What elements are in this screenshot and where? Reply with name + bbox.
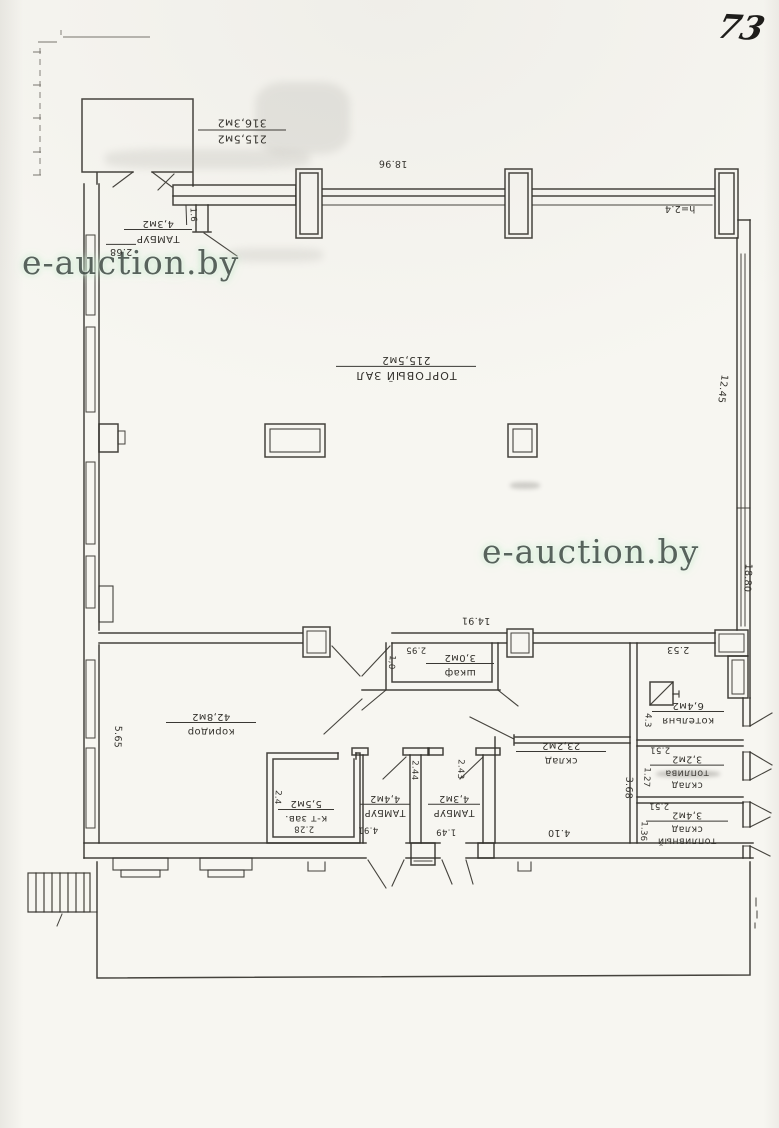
room-name: ТАМБУР bbox=[124, 230, 192, 245]
dim-tambour-right-width: 1.49 bbox=[433, 826, 459, 837]
left-wall-windows bbox=[86, 235, 95, 828]
hall-columns bbox=[265, 424, 537, 457]
room-name: шкаф bbox=[426, 664, 494, 679]
room-label-trading-hall: ТОРГОВЫЙ ЗАЛ 215,5м2 bbox=[336, 353, 476, 382]
dim-office-depth: 2.4 bbox=[271, 786, 283, 809]
room-name: склад bbox=[516, 752, 606, 767]
hall-area-value: 215,5м2 bbox=[198, 130, 286, 146]
room-area: 23,2м2 bbox=[516, 739, 606, 752]
room-area: 6,4м2 bbox=[652, 699, 724, 712]
strikethrough-smudge bbox=[656, 771, 720, 777]
room-name: ТАМБУР bbox=[360, 804, 410, 818]
dim-storage-side: 3.68 bbox=[622, 772, 635, 804]
dim-fuel2-side: 1.36 bbox=[637, 818, 649, 845]
watermark: e-auction.by bbox=[482, 532, 699, 571]
dim-wardrobe-width: 2.95 bbox=[402, 644, 430, 655]
room-label-fuel-storage-2: топливный склад 3,4м2 bbox=[646, 809, 728, 847]
dim-boiler-top: 2.53 bbox=[658, 643, 698, 655]
room-area: 3,2м2 bbox=[650, 753, 724, 765]
dim-fuel1-side: 1.27 bbox=[640, 764, 652, 791]
room-area: 3,0м2 bbox=[426, 651, 494, 664]
bleedthrough-smudge bbox=[228, 248, 323, 262]
dim-tambour-right-depth: 2.43 bbox=[454, 755, 466, 783]
pencil-smudge bbox=[510, 482, 540, 489]
entry-steps bbox=[113, 858, 252, 877]
room-label-wardrobe: шкаф 3,0м2 bbox=[426, 651, 494, 678]
dim-tambour-left-depth: 2.44 bbox=[408, 756, 420, 784]
bleedthrough-smudge bbox=[105, 149, 310, 169]
total-area-fraction: 215,5м2 316,3м2 bbox=[198, 116, 286, 146]
room-name: топливный склад bbox=[646, 821, 728, 847]
room-name-line1: топливный bbox=[649, 835, 725, 847]
room-area: 4,3м2 bbox=[428, 792, 480, 804]
room-label-tambour-top: ТАМБУР 4,3м2 bbox=[124, 217, 192, 244]
room-area: 215,5м2 bbox=[336, 353, 476, 366]
room-area: 3,4м2 bbox=[646, 809, 728, 821]
dim-left-wall: 5.65 bbox=[110, 714, 123, 760]
dim-storage-width: 4.10 bbox=[541, 826, 577, 838]
room-area: 42,8м2 bbox=[166, 710, 256, 723]
dim-corridor-segment: 4.91 bbox=[354, 824, 382, 835]
room-name-line2: склад bbox=[649, 823, 725, 835]
room-label-storage: склад 23,2м2 bbox=[516, 739, 606, 766]
room-name: ТОРГОВЫЙ ЗАЛ bbox=[336, 366, 476, 382]
room-area: 5,5м2 bbox=[278, 797, 334, 810]
dim-tambour-top-width: 2.68 bbox=[106, 244, 136, 257]
total-area-value: 316,3м2 bbox=[198, 116, 286, 130]
room-label-office: к-т зав. 5,5м2 bbox=[278, 797, 334, 824]
room-label-boiler: котельня 6,4м2 bbox=[652, 699, 724, 726]
room-label-corridor: коридор 42,8м2 bbox=[166, 710, 256, 737]
page-number: 73 bbox=[713, 7, 775, 49]
room-name-line1: склад bbox=[653, 779, 721, 791]
dim-boiler-bottom: 2.51 bbox=[645, 744, 675, 755]
room-area: 4,4м2 bbox=[360, 792, 410, 804]
room-label-tambour-left: ТАМБУР 4,4м2 bbox=[360, 792, 410, 818]
dim-office-width: 2.28 bbox=[289, 823, 319, 834]
room-name: склад топлива bbox=[650, 765, 724, 791]
dim-wardrobe-depth: 1,0 bbox=[385, 651, 398, 674]
room-area: 4,3м2 bbox=[124, 217, 192, 230]
room-name: к-т зав. bbox=[278, 810, 334, 825]
dim-ceiling-height: h=2.4 bbox=[654, 202, 706, 214]
room-name: коридор bbox=[166, 723, 256, 738]
stairs bbox=[28, 873, 97, 926]
scanned-floorplan-page: 73 e-auction.by e-auction.by 215,5м2 316… bbox=[0, 0, 779, 1128]
dim-top-wall: 18.96 bbox=[366, 157, 420, 170]
room-label-tambour-right: ТАМБУР 4,3м2 bbox=[428, 792, 480, 818]
dim-boiler-side: 4.3 bbox=[641, 707, 653, 734]
dim-inner-wall: 14.91 bbox=[450, 614, 502, 627]
room-name: ТАМБУР bbox=[428, 804, 480, 818]
room-name: котельня bbox=[652, 712, 724, 727]
dim-wall-tick: 1.6 bbox=[186, 205, 198, 225]
dim-fuel1-bottom: 2.51 bbox=[644, 800, 674, 811]
